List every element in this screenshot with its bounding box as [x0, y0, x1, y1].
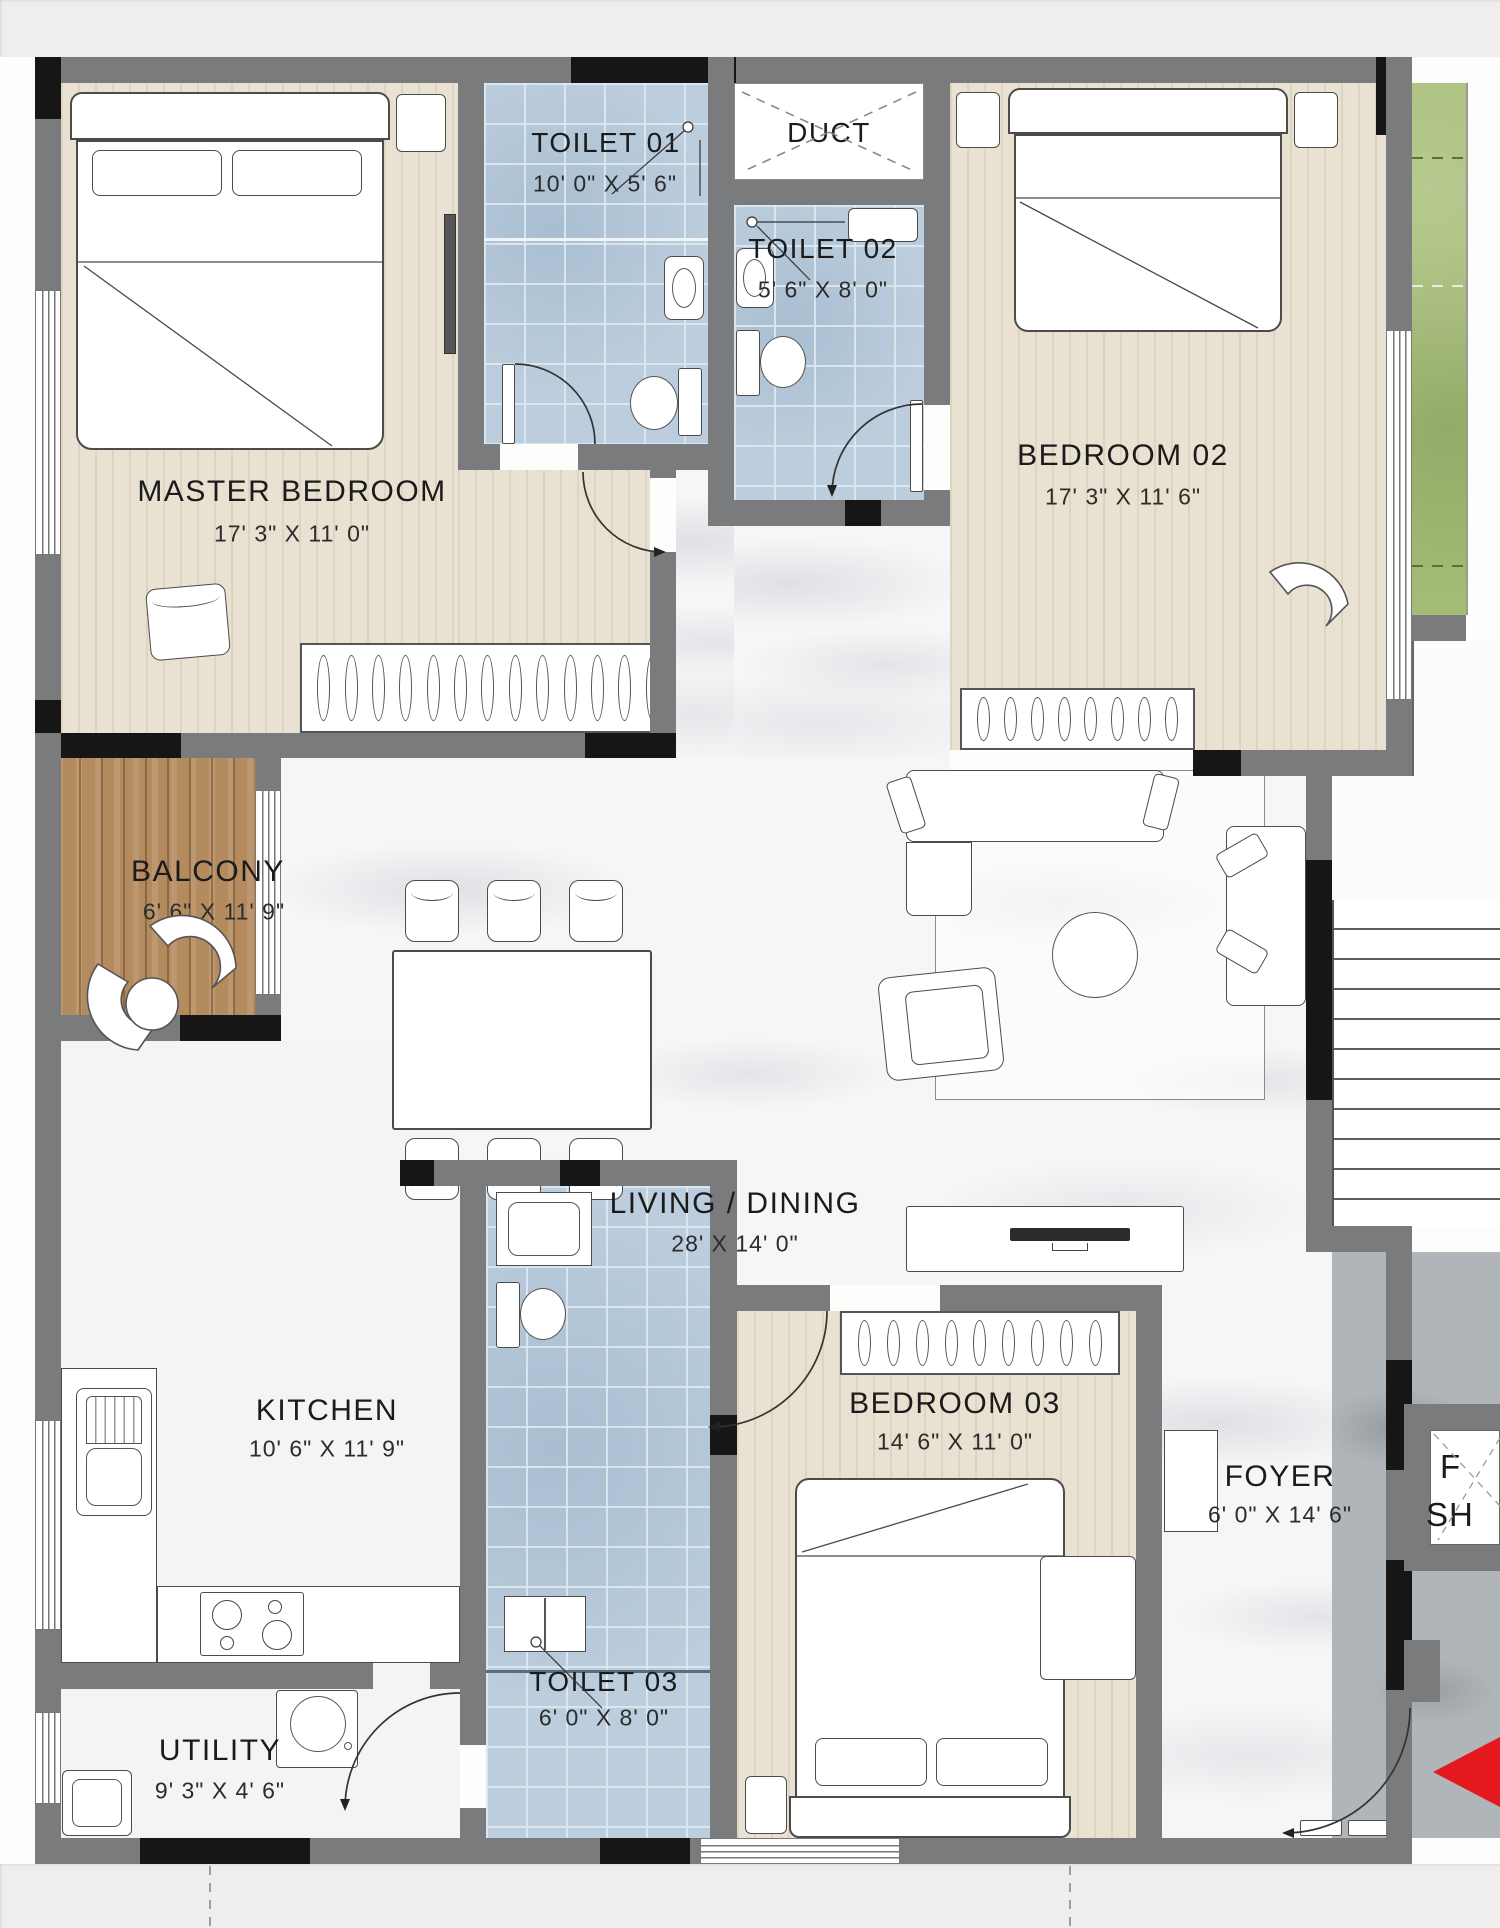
- exterior-paving-top: [0, 0, 1500, 57]
- wall: [734, 180, 924, 205]
- wall: [940, 1285, 1136, 1311]
- master-bedroom-label: MASTER BEDROOM: [137, 475, 446, 509]
- bedroom-02-bed: [1014, 134, 1282, 332]
- living-dining-label: LIVING / DINING: [610, 1187, 861, 1221]
- toilet-01-door-leaf: [502, 364, 515, 444]
- utility-sink-bowl: [72, 1779, 122, 1827]
- master-chair: [145, 583, 231, 662]
- master-dressing-floor: [458, 470, 650, 643]
- exterior-paving-bottom: [0, 1864, 1500, 1928]
- wall: [650, 552, 676, 733]
- bedroom-02-nightstand: [1294, 92, 1338, 148]
- kitchen-sink-bowl: [86, 1448, 142, 1506]
- toilet-01-wc-tank: [678, 368, 702, 436]
- toilet-01-wc-bowl: [630, 376, 678, 430]
- wall: [924, 57, 950, 405]
- dining-table: [392, 950, 652, 1130]
- toilet-03-cabinet-divider: [544, 1598, 546, 1650]
- entrance-door-jamb: [1404, 1640, 1440, 1702]
- fire-shaft-frame: [1404, 1404, 1500, 1430]
- master-tv-panel: [444, 214, 456, 354]
- wall: [708, 57, 734, 526]
- sofa-main: [906, 770, 1164, 842]
- utility-dims: 9' 3" X 4' 6": [155, 1778, 285, 1805]
- duct-label: DUCT: [787, 117, 871, 149]
- bedroom-03-wardrobe: [840, 1311, 1120, 1375]
- window: [1386, 330, 1412, 700]
- wall: [737, 1285, 830, 1311]
- balcony-sliding-door: [255, 790, 281, 995]
- hall-floor: [734, 526, 950, 757]
- bedroom-03-dims: 14' 6" X 11' 0": [877, 1429, 1033, 1456]
- toilet-01-basin-bowl: [672, 268, 696, 308]
- window: [35, 1420, 61, 1630]
- coffee-table: [1052, 912, 1138, 998]
- toilet-02-wc-bowl: [760, 336, 806, 388]
- balcony-dims: 6' 6" X 11' 9": [143, 899, 285, 926]
- toilet-03-basin-bowl: [508, 1202, 580, 1256]
- stair-landing: [1412, 641, 1500, 776]
- wall: [35, 57, 61, 119]
- wall: [708, 500, 950, 526]
- bedroom-03-nightstand: [745, 1776, 787, 1834]
- bedroom-02-dims: 17' 3" X 11' 6": [1045, 484, 1201, 511]
- wall: [1306, 860, 1332, 1100]
- wall: [458, 444, 500, 470]
- dining-chair: [405, 880, 459, 942]
- toilet-03-wc-bowl: [520, 1288, 566, 1340]
- bedroom-02-nightstand: [956, 92, 1000, 148]
- toilet-02-door-leaf: [910, 400, 923, 492]
- bedroom-03-label: BEDROOM 03: [849, 1387, 1061, 1421]
- hob-burner: [220, 1636, 234, 1650]
- wall: [560, 1160, 600, 1186]
- wall: [460, 1186, 486, 1745]
- wall: [1412, 615, 1466, 641]
- tv: [1010, 1228, 1130, 1241]
- wall: [458, 57, 484, 470]
- toilet-03-label: TOILET 03: [529, 1666, 678, 1698]
- master-bedroom-dims: 17' 3" X 11' 0": [214, 521, 370, 548]
- hob-burner: [212, 1600, 242, 1630]
- bedroom-02-wardrobe: [960, 688, 1195, 750]
- toilet-03-wc-tank: [496, 1282, 520, 1348]
- hob-burner: [268, 1600, 282, 1614]
- bedroom-03-pillow: [936, 1738, 1048, 1786]
- bedroom-02-label: BEDROOM 02: [1017, 439, 1229, 473]
- toilet-02-label: TOILET 02: [748, 233, 897, 265]
- kitchen-sink-drain: [86, 1396, 142, 1444]
- master-nightstand: [396, 94, 446, 152]
- window: [35, 290, 61, 555]
- master-bed-pillow: [232, 150, 362, 196]
- foyer-dims: 6' 0" X 14' 6": [1208, 1502, 1352, 1529]
- utility-label: UTILITY: [159, 1734, 281, 1768]
- entrance-door-panel: [1300, 1820, 1342, 1836]
- wall: [845, 500, 881, 526]
- toilet-03-dims: 6' 0" X 8' 0": [539, 1705, 669, 1732]
- sofa-return: [906, 842, 972, 916]
- foyer-label: FOYER: [1225, 1460, 1336, 1494]
- lawn-edge: [1466, 83, 1468, 615]
- wall: [140, 1838, 310, 1864]
- wall: [650, 470, 676, 478]
- shower-partition: [484, 238, 708, 241]
- toilet-01-label: TOILET 01: [531, 127, 680, 159]
- kitchen-label: KITCHEN: [256, 1394, 398, 1428]
- lawn-strip: [1412, 83, 1466, 615]
- floor-plan: MASTER BEDROOM 17' 3" X 11' 0" TOILET 01…: [0, 0, 1500, 1928]
- master-wardrobe: [300, 643, 676, 733]
- wall: [600, 1838, 690, 1864]
- wall: [180, 1015, 281, 1041]
- tv-stand: [1052, 1243, 1088, 1251]
- toilet-02-dims: 5' 6" X 8' 0": [758, 277, 888, 304]
- toilet-01-dims: 10' 0" X 5' 6": [533, 171, 677, 198]
- wall: [710, 1186, 737, 1838]
- master-bed-pillow: [92, 150, 222, 196]
- armchair-seat: [904, 984, 989, 1066]
- wall: [400, 1160, 434, 1186]
- kitchen-dims: 10' 6" X 11' 9": [249, 1436, 405, 1463]
- wall: [61, 733, 181, 758]
- wall: [1136, 1285, 1162, 1838]
- fire-shaft-label-line1: F: [1440, 1448, 1461, 1486]
- bedroom-02-bed-headboard: [1008, 88, 1288, 134]
- master-bed-headboard: [70, 92, 390, 140]
- bedroom-03-pillow: [815, 1738, 927, 1786]
- toilet-02-wc-tank: [736, 330, 760, 396]
- hob-burner: [262, 1620, 292, 1650]
- bedroom-03-bed-headboard: [789, 1796, 1071, 1838]
- wall: [460, 1808, 486, 1838]
- fire-shaft-frame: [1430, 1545, 1500, 1571]
- balcony-label: BALCONY: [131, 855, 285, 889]
- dining-chair: [487, 880, 541, 942]
- stair-landing-2: [1332, 776, 1500, 900]
- washing-machine-drum: [290, 1696, 346, 1752]
- wall: [1193, 750, 1241, 776]
- window: [35, 1712, 61, 1804]
- washing-machine-knob: [344, 1742, 352, 1750]
- wall: [710, 1415, 737, 1455]
- fire-shaft-label-line2: SH: [1426, 1496, 1474, 1534]
- window: [700, 1838, 900, 1864]
- dining-chair: [569, 880, 623, 942]
- bedroom-03-desk: [1040, 1556, 1136, 1680]
- staircase: [1332, 900, 1500, 1228]
- entrance-door-panel: [1348, 1820, 1390, 1836]
- living-dining-dims: 28' X 14' 0": [671, 1231, 798, 1258]
- wall: [585, 733, 676, 758]
- wall: [1306, 1226, 1412, 1252]
- utility-door-gap: [373, 1663, 430, 1689]
